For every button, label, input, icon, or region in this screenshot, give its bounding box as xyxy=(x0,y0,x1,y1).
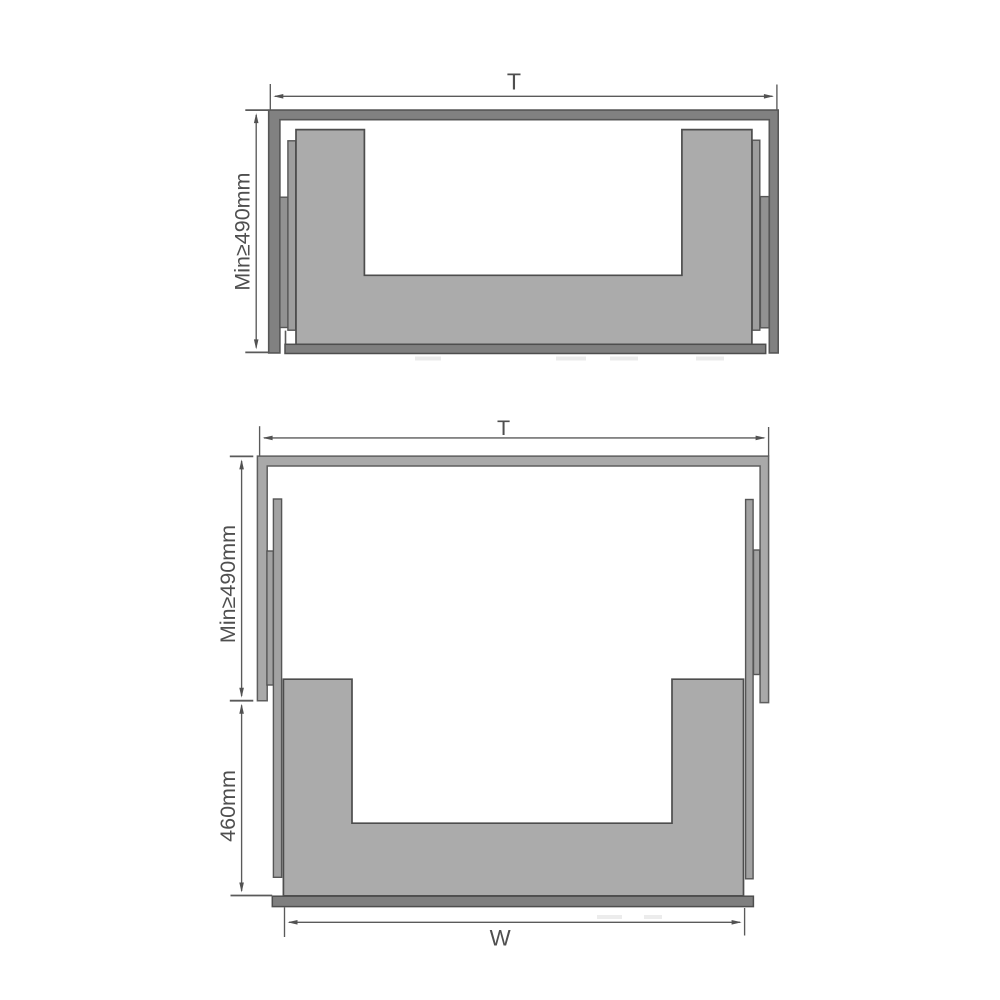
svg-text:T: T xyxy=(497,416,510,440)
svg-text:T: T xyxy=(507,69,521,95)
svg-text:Min≥490mm: Min≥490mm xyxy=(230,173,254,291)
svg-text:460mm: 460mm xyxy=(216,770,240,842)
svg-text:Min≥490mm: Min≥490mm xyxy=(216,525,240,643)
svg-text:W: W xyxy=(490,925,511,950)
